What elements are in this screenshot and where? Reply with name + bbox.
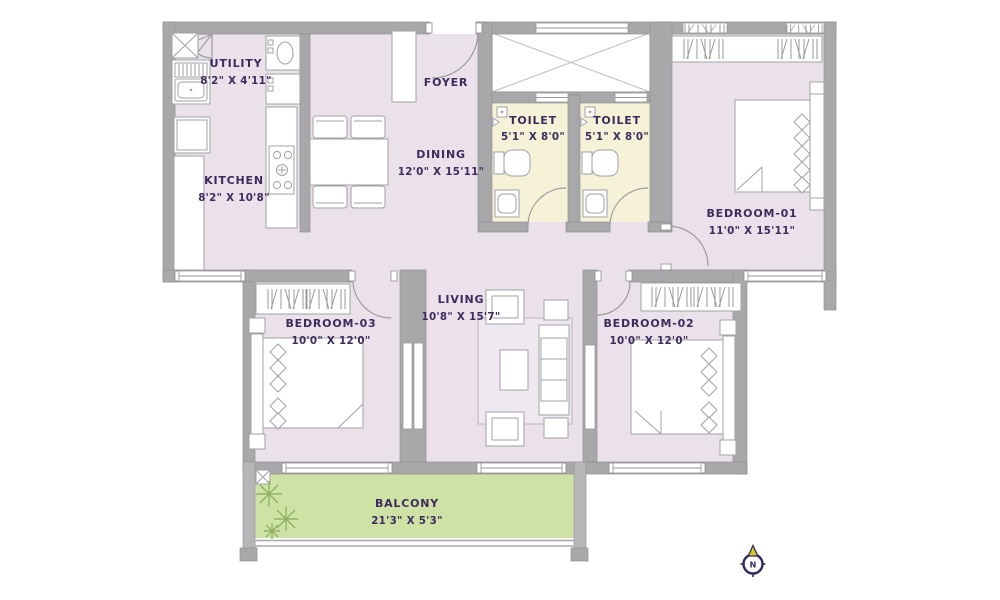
svg-text:TOILET: TOILET — [593, 114, 641, 127]
svg-text:LIVING: LIVING — [438, 293, 485, 306]
svg-text:5'1" X 8'0": 5'1" X 8'0" — [585, 131, 649, 143]
floor-plan: UTILITY 8'2" X 4'11" KITCHEN 8'2" X 10'8… — [0, 0, 1000, 600]
svg-text:12'0" X 15'11": 12'0" X 15'11" — [398, 166, 485, 178]
svg-text:10'0" X 12'0": 10'0" X 12'0" — [291, 335, 370, 347]
svg-text:BEDROOM-02: BEDROOM-02 — [603, 317, 694, 330]
bedroom-01-wardrobe — [672, 36, 822, 62]
balcony-shaft-box — [256, 470, 270, 484]
bedroom-01-window — [744, 271, 826, 281]
bedroom-02-window — [609, 463, 705, 473]
svg-text:21'3" X 5'3": 21'3" X 5'3" — [371, 515, 443, 527]
kitchen-window — [175, 271, 245, 281]
living-window — [477, 463, 566, 473]
floor-plan-page: UTILITY 8'2" X 4'11" KITCHEN 8'2" X 10'8… — [0, 0, 1000, 600]
svg-text:BEDROOM-01: BEDROOM-01 — [706, 207, 797, 220]
shaft-top-window — [536, 23, 628, 33]
svg-text:BEDROOM-03: BEDROOM-03 — [285, 317, 376, 330]
bedroom-03-window — [282, 463, 392, 473]
svg-text:BALCONY: BALCONY — [375, 497, 439, 510]
bedroom-02-wardrobe — [641, 283, 741, 311]
svg-text:FOYER: FOYER — [424, 76, 468, 89]
compass-north-label: N — [750, 561, 757, 570]
compass-icon: N — [741, 546, 766, 578]
balcony-rail — [255, 541, 574, 547]
svg-text:11'0" X 15'11": 11'0" X 15'11" — [709, 225, 796, 237]
svg-text:DINING: DINING — [416, 148, 466, 161]
svg-text:8'2" X 4'11": 8'2" X 4'11" — [200, 75, 272, 87]
utility-shaft-box — [172, 33, 198, 58]
fridge — [174, 117, 210, 153]
svg-text:8'2" X 10'8": 8'2" X 10'8" — [198, 192, 270, 204]
kitchen-counter-left — [174, 156, 204, 270]
bedroom-01-bed — [735, 82, 824, 210]
svg-text:10'0" X 12'0": 10'0" X 12'0" — [609, 335, 688, 347]
svg-text:TOILET: TOILET — [509, 114, 557, 127]
stove-icon — [269, 146, 294, 194]
svg-text:5'1" X 8'0": 5'1" X 8'0" — [501, 131, 565, 143]
svg-text:KITCHEN: KITCHEN — [204, 174, 264, 187]
foyer-cabinet — [392, 31, 416, 102]
label-foyer: FOYER — [424, 76, 468, 89]
washing-machine — [266, 36, 300, 70]
svg-text:UTILITY: UTILITY — [210, 57, 263, 70]
bedroom-03-wardrobe — [256, 284, 350, 314]
svg-text:10'8" X 15'7": 10'8" X 15'7" — [421, 311, 500, 323]
